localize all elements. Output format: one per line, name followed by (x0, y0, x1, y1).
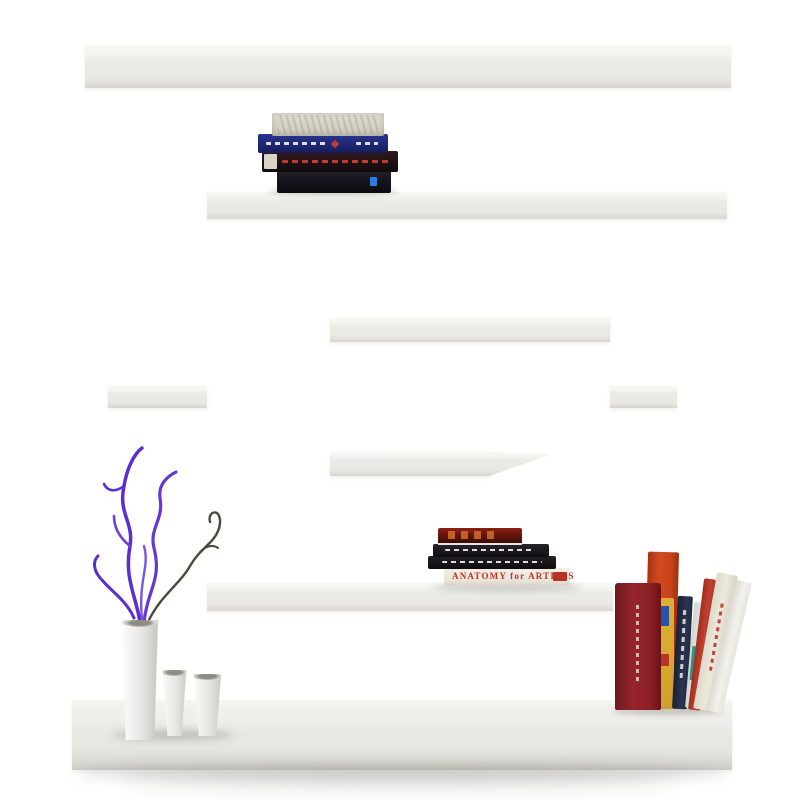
product-photo-stage: ANATOMY for ARTISTS (0, 0, 800, 800)
book-anatomy: ANATOMY for ARTISTS (444, 568, 570, 586)
inner-right-post (567, 318, 610, 590)
book-black-a (433, 544, 549, 557)
second-board (207, 192, 727, 219)
spine-text (442, 561, 542, 563)
cover-art (448, 531, 500, 539)
spine-text-white2 (356, 142, 378, 145)
vase-tall (122, 620, 158, 740)
vase-rim (192, 672, 223, 680)
inner-bottom-shelf-tip (489, 452, 553, 476)
top-board (85, 46, 731, 88)
spine-label (264, 154, 277, 169)
spine-text-cream (636, 605, 639, 681)
purple-hook (104, 484, 124, 490)
dark-branch (148, 512, 220, 622)
left-mid-shelf (108, 386, 207, 408)
branches-svg (88, 428, 258, 638)
book-navy (258, 134, 388, 153)
red-diamond (331, 140, 339, 148)
red-band (661, 654, 669, 666)
blue-mark (370, 177, 377, 186)
blue-band (660, 606, 669, 626)
book-maroon (615, 583, 661, 710)
page-edge (438, 543, 522, 545)
purple-branch-2 (144, 472, 176, 622)
book-black-b (428, 556, 556, 569)
red-block (553, 572, 567, 581)
vase-rim (161, 668, 188, 676)
spine-text (445, 549, 535, 551)
purple-branch-main (123, 448, 142, 622)
book-black-blue-mark (277, 170, 391, 193)
pattern (278, 115, 378, 134)
book-black-red-text (262, 151, 398, 172)
inner-top-board (330, 318, 610, 342)
spine-text-white (266, 142, 328, 145)
spine-text (680, 610, 687, 680)
book-cream-patterned (272, 113, 384, 136)
top-divider (567, 86, 609, 198)
right-mid-shelf (610, 386, 677, 408)
book-red-art (438, 528, 522, 545)
base-shadow-soft (120, 774, 680, 790)
inner-bottom-shelf (330, 452, 490, 476)
spine-text-red (282, 160, 390, 163)
